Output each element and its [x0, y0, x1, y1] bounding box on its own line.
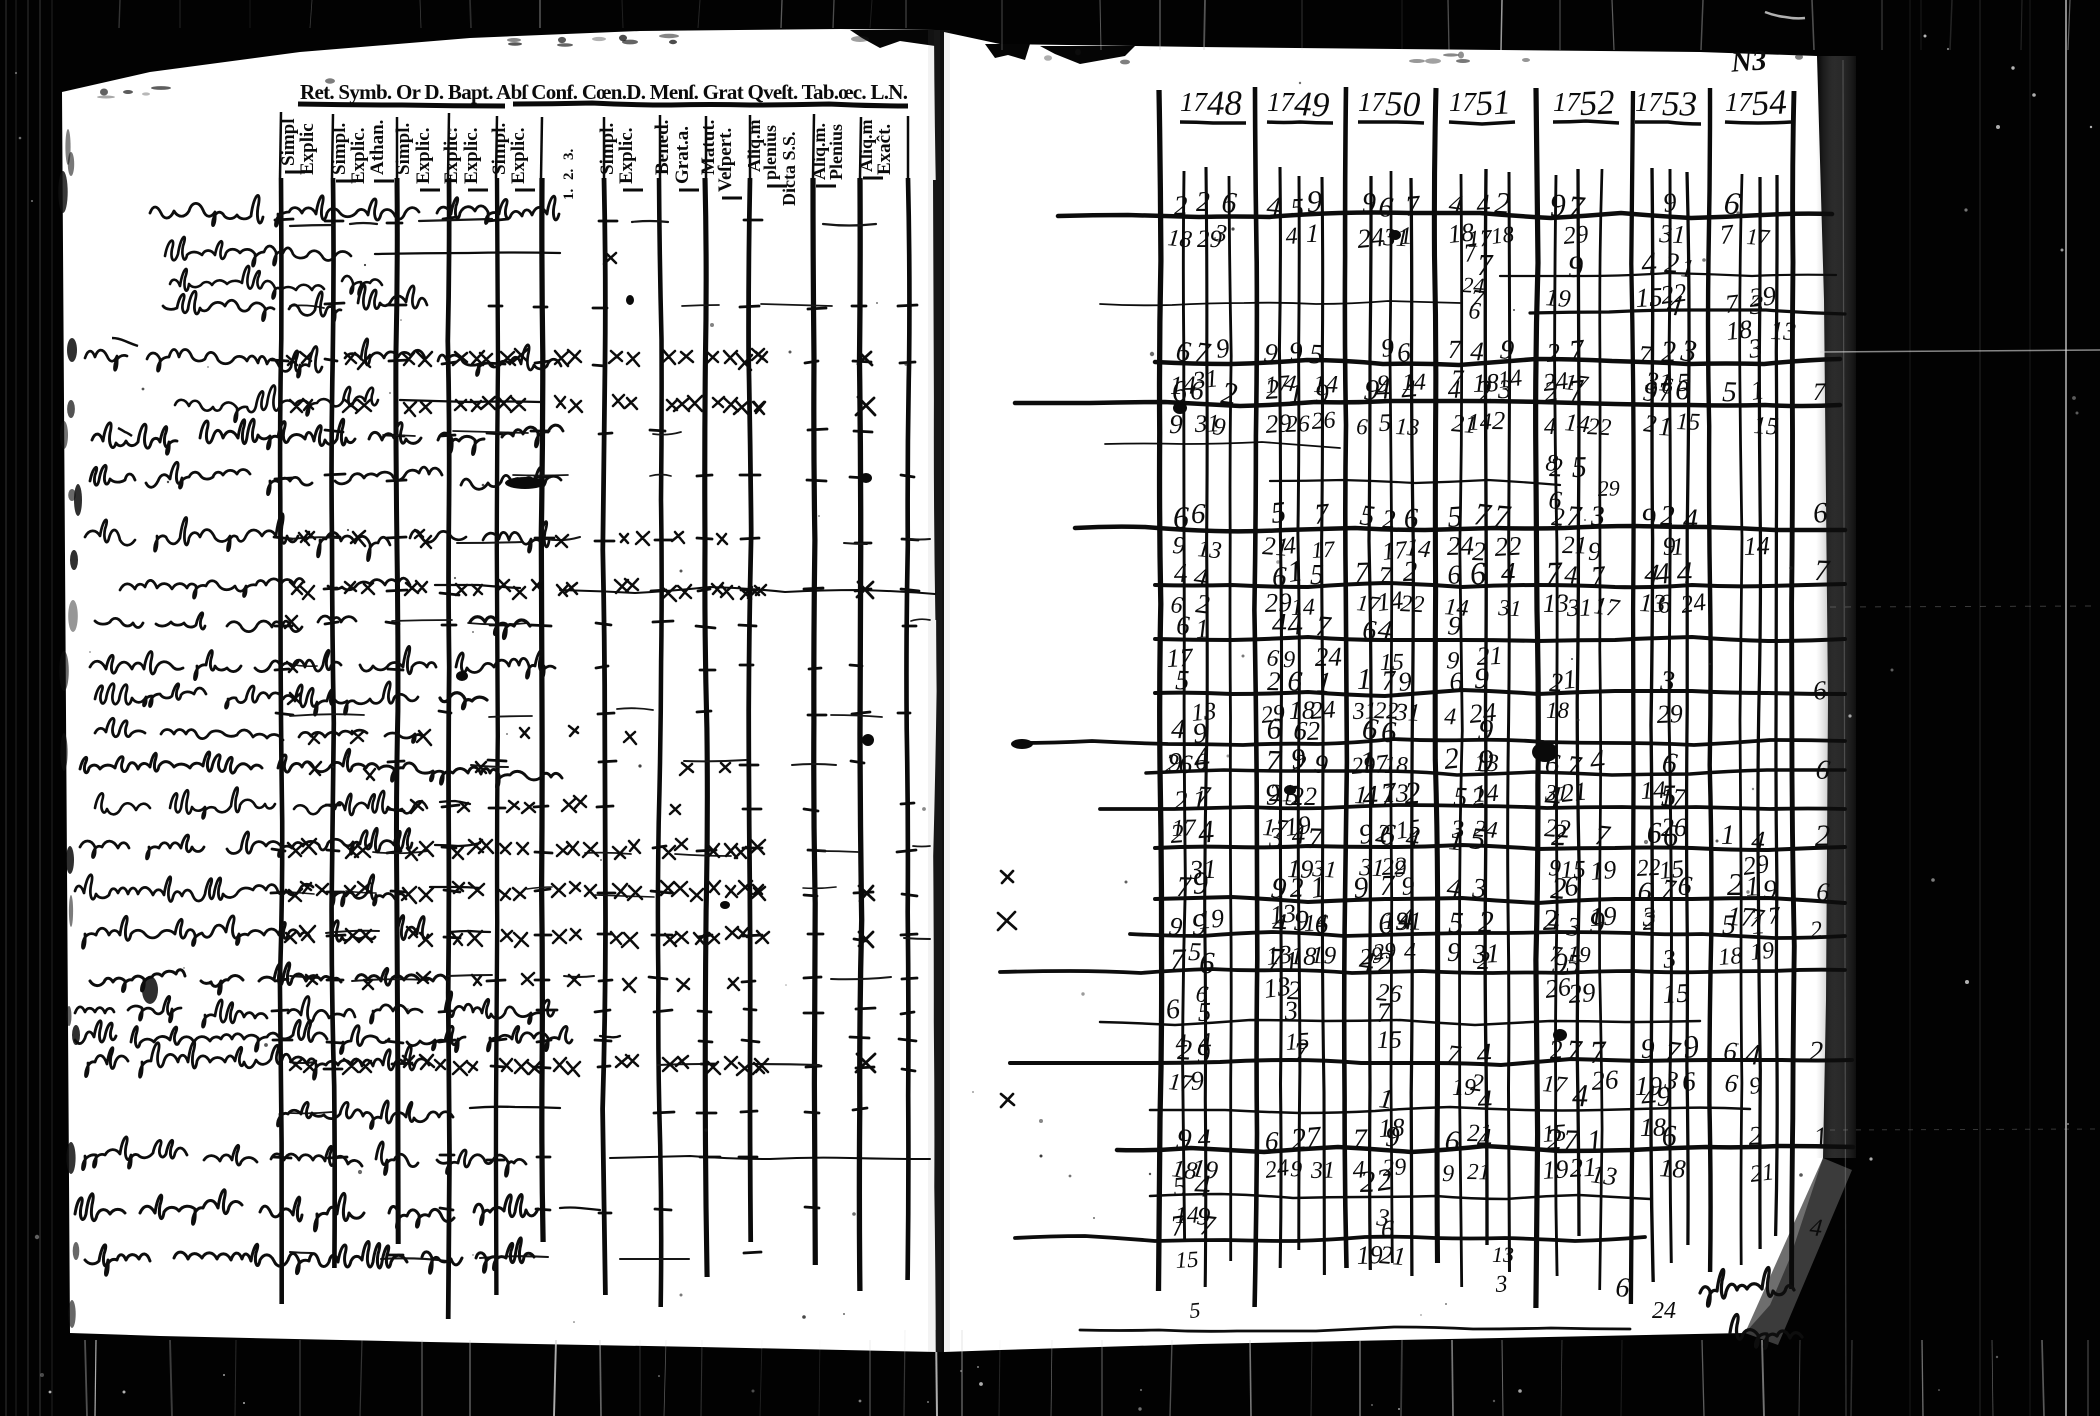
svg-text:4: 4 — [1197, 1124, 1211, 1153]
svg-text:2: 2 — [1542, 903, 1558, 937]
svg-text:5: 5 — [1572, 451, 1588, 484]
svg-text:7: 7 — [1265, 743, 1283, 779]
svg-text:17: 17 — [1541, 1071, 1568, 1099]
svg-text:50: 50 — [1385, 84, 1422, 124]
svg-text:6: 6 — [1816, 877, 1830, 907]
svg-text:31: 31 — [1497, 595, 1522, 621]
svg-text:1: 1 — [1192, 785, 1207, 816]
svg-text:5: 5 — [1175, 665, 1190, 696]
svg-text:5: 5 — [1448, 906, 1465, 940]
svg-text:4: 4 — [1272, 608, 1288, 641]
svg-text:5: 5 — [1721, 910, 1736, 941]
svg-text:4: 4 — [1477, 1085, 1493, 1117]
svg-text:19: 19 — [1544, 284, 1572, 313]
svg-text:9: 9 — [1264, 778, 1282, 812]
svg-text:4: 4 — [1501, 557, 1516, 589]
svg-text:1: 1 — [1357, 663, 1373, 696]
svg-text:18: 18 — [1166, 225, 1193, 253]
svg-text:1: 1 — [1289, 378, 1303, 408]
svg-text:6: 6 — [1446, 559, 1462, 590]
svg-text:31: 31 — [1566, 595, 1592, 622]
svg-text:4: 4 — [1375, 372, 1391, 406]
svg-text:9: 9 — [1315, 379, 1330, 410]
svg-text:26: 26 — [1311, 407, 1337, 435]
svg-text:9: 9 — [1589, 904, 1605, 940]
svg-text:6: 6 — [1661, 1119, 1677, 1153]
svg-text:49: 49 — [1293, 84, 1330, 125]
svg-text:4: 4 — [1400, 373, 1418, 409]
svg-text:1: 1 — [1315, 666, 1332, 699]
svg-text:17: 17 — [1267, 87, 1296, 117]
svg-text:6: 6 — [1563, 871, 1579, 903]
svg-text:9: 9 — [1640, 1034, 1655, 1065]
svg-text:24: 24 — [1679, 589, 1708, 619]
svg-text:7: 7 — [1353, 1124, 1369, 1155]
svg-text:Explic.: Explic. — [441, 128, 462, 184]
svg-text:6: 6 — [1191, 498, 1206, 530]
svg-text:9: 9 — [1477, 742, 1494, 779]
svg-text:9: 9 — [1568, 249, 1584, 284]
svg-text:31: 31 — [1394, 699, 1421, 727]
svg-text:9: 9 — [1189, 1065, 1205, 1096]
svg-text:9: 9 — [1447, 937, 1461, 967]
svg-text:2: 2 — [1177, 1034, 1193, 1067]
svg-text:21: 21 — [1749, 1159, 1776, 1188]
svg-text:29: 29 — [1656, 699, 1683, 729]
svg-text:2: 2 — [1551, 502, 1566, 532]
svg-text:7: 7 — [1354, 556, 1371, 589]
svg-text:9: 9 — [1474, 662, 1489, 695]
svg-text:17: 17 — [1180, 87, 1209, 117]
svg-text:2: 2 — [1661, 334, 1677, 369]
svg-text:2: 2 — [1748, 1120, 1763, 1151]
svg-text:13: 13 — [1543, 589, 1570, 618]
svg-text:6: 6 — [1657, 588, 1673, 619]
svg-text:7: 7 — [1176, 871, 1193, 904]
svg-text:2: 2 — [1403, 774, 1421, 811]
svg-text:4: 4 — [1272, 908, 1288, 940]
svg-text:1: 1 — [1195, 613, 1210, 644]
svg-text:3: 3 — [1497, 374, 1512, 404]
svg-text:9: 9 — [1306, 183, 1323, 219]
svg-text:4: 4 — [1285, 223, 1298, 250]
svg-text:Ret. Symb. Or D. Bapt. Abſ Con: Ret. Symb. Or D. Bapt. Abſ Conf. Cœn.D. … — [300, 80, 908, 104]
svg-text:15: 15 — [1753, 412, 1780, 441]
svg-text:5: 5 — [1188, 1297, 1201, 1323]
svg-text:5: 5 — [1197, 997, 1212, 1027]
svg-text:54: 54 — [1751, 82, 1788, 123]
svg-text:7: 7 — [1813, 379, 1827, 406]
svg-text:2: 2 — [1815, 818, 1831, 853]
svg-text:17: 17 — [1725, 87, 1754, 117]
svg-text:29: 29 — [1567, 977, 1597, 1009]
svg-text:Bened.: Bened. — [652, 120, 673, 175]
svg-text:2: 2 — [1306, 716, 1321, 746]
svg-text:4: 4 — [1171, 714, 1186, 745]
svg-text:Explic.: Explic. — [461, 128, 482, 184]
svg-text:13: 13 — [1196, 536, 1223, 564]
svg-text:13: 13 — [1492, 1242, 1514, 1267]
svg-text:7: 7 — [1448, 335, 1463, 364]
svg-text:31: 31 — [1310, 1158, 1335, 1184]
svg-text:9: 9 — [1385, 1121, 1401, 1153]
svg-text:5: 5 — [1285, 780, 1300, 812]
svg-text:4: 4 — [1174, 558, 1188, 588]
svg-text:2: 2 — [1727, 866, 1743, 902]
svg-text:26: 26 — [1590, 1064, 1620, 1096]
svg-text:6: 6 — [1467, 298, 1481, 325]
svg-text:13: 13 — [1770, 316, 1797, 346]
svg-text:6: 6 — [1221, 186, 1238, 220]
svg-text:53: 53 — [1662, 84, 1698, 124]
svg-text:6: 6 — [1315, 909, 1330, 939]
svg-text:17: 17 — [1746, 224, 1772, 250]
svg-text:3: 3 — [1471, 873, 1488, 905]
svg-text:6: 6 — [1723, 1036, 1739, 1067]
svg-text:9: 9 — [1641, 502, 1656, 535]
svg-text:9: 9 — [1168, 748, 1182, 779]
svg-text:Explic: Explic — [297, 123, 318, 175]
svg-text:1: 1 — [1744, 871, 1760, 903]
svg-text:21: 21 — [1378, 1240, 1406, 1271]
svg-text:4: 4 — [1444, 704, 1457, 730]
svg-text:18: 18 — [1717, 943, 1743, 971]
svg-text:7: 7 — [1376, 997, 1392, 1029]
svg-text:Plenius: Plenius — [826, 124, 846, 180]
svg-text:9: 9 — [1400, 871, 1415, 901]
svg-text:2: 2 — [1551, 817, 1567, 852]
svg-text:17: 17 — [1358, 87, 1387, 117]
svg-text:24: 24 — [1462, 272, 1485, 298]
svg-text:21: 21 — [1467, 1159, 1490, 1184]
svg-text:6: 6 — [1190, 375, 1205, 405]
svg-text:4: 4 — [1362, 778, 1379, 814]
svg-text:7: 7 — [1170, 942, 1188, 977]
svg-text:9: 9 — [1442, 1161, 1454, 1187]
svg-text:2: 2 — [1546, 1121, 1563, 1157]
svg-text:21: 21 — [1560, 776, 1589, 808]
svg-text:5: 5 — [1309, 339, 1324, 370]
svg-text:7: 7 — [1307, 822, 1325, 855]
svg-text:14: 14 — [1467, 409, 1492, 436]
svg-text:5: 5 — [1310, 560, 1324, 591]
svg-text:24: 24 — [1652, 1298, 1676, 1324]
svg-text:2: 2 — [1169, 818, 1185, 849]
svg-text:29: 29 — [1597, 475, 1620, 501]
svg-text:52: 52 — [1579, 82, 1616, 123]
svg-text:24: 24 — [1356, 222, 1386, 254]
svg-text:6: 6 — [1646, 816, 1662, 850]
svg-text:15: 15 — [1175, 1246, 1200, 1273]
svg-text:1: 1 — [1750, 909, 1766, 941]
svg-text:2: 2 — [1196, 187, 1210, 218]
svg-text:9: 9 — [1191, 864, 1209, 901]
svg-text:6: 6 — [1404, 503, 1420, 535]
svg-text:3: 3 — [1213, 220, 1228, 248]
svg-text:2: 2 — [1492, 406, 1506, 435]
svg-text:13: 13 — [1395, 414, 1420, 441]
svg-text:4: 4 — [1398, 901, 1415, 937]
svg-text:6: 6 — [1265, 1126, 1279, 1156]
svg-text:6: 6 — [1356, 414, 1369, 439]
svg-text:1: 1 — [1399, 223, 1412, 250]
svg-text:4: 4 — [1291, 820, 1306, 850]
svg-text:6: 6 — [1287, 665, 1304, 698]
svg-text:1: 1 — [1658, 411, 1673, 442]
svg-text:4: 4 — [1683, 503, 1698, 536]
svg-text:19: 19 — [1749, 938, 1776, 966]
svg-text:4: 4 — [1544, 414, 1556, 440]
svg-text:3: 3 — [1494, 1271, 1509, 1298]
svg-text:17: 17 — [1553, 87, 1582, 117]
svg-text:2: 2 — [1660, 500, 1675, 532]
svg-text:9: 9 — [1656, 1081, 1672, 1113]
svg-text:2: 2 — [1382, 504, 1396, 534]
svg-text:Simpl.: Simpl. — [597, 123, 618, 175]
svg-text:4: 4 — [1745, 1038, 1762, 1072]
svg-text:1: 1 — [1721, 820, 1736, 851]
svg-text:7: 7 — [1638, 340, 1653, 370]
svg-text:5: 5 — [1446, 500, 1463, 534]
svg-text:Veſpert.: Veſpert. — [715, 128, 736, 192]
svg-text:15: 15 — [1377, 1027, 1402, 1054]
svg-text:4: 4 — [1475, 189, 1491, 221]
svg-text:Explic.: Explic. — [348, 128, 369, 184]
svg-text:4: 4 — [1196, 813, 1215, 850]
svg-text:3: 3 — [1659, 665, 1676, 698]
svg-text:2.: 2. — [561, 169, 577, 181]
svg-text:14: 14 — [1743, 531, 1770, 561]
svg-text:7: 7 — [1380, 870, 1397, 902]
svg-text:15: 15 — [1676, 409, 1701, 436]
svg-text:18: 18 — [1659, 1153, 1687, 1184]
svg-text:1: 1 — [1306, 219, 1319, 248]
svg-text:7: 7 — [1294, 1037, 1310, 1067]
svg-text:2: 2 — [1478, 904, 1494, 939]
svg-text:4: 4 — [1654, 557, 1672, 591]
svg-text:9: 9 — [1352, 871, 1369, 905]
svg-text:Athan.: Athan. — [367, 120, 388, 175]
svg-text:4: 4 — [1404, 939, 1416, 965]
svg-text:17: 17 — [1635, 87, 1664, 117]
svg-text:2: 2 — [1360, 1164, 1376, 1199]
svg-text:3: 3 — [1590, 501, 1606, 532]
svg-text:3.: 3. — [561, 149, 577, 161]
svg-text:19: 19 — [1541, 1154, 1569, 1185]
svg-text:2: 2 — [1642, 906, 1656, 936]
svg-text:51: 51 — [1475, 82, 1512, 123]
svg-text:Explic.: Explic. — [508, 128, 529, 184]
svg-text:2: 2 — [1494, 185, 1511, 221]
svg-text:Grat.a.: Grat.a. — [672, 126, 693, 184]
svg-text:2: 2 — [1267, 666, 1281, 696]
svg-text:4: 4 — [1265, 191, 1282, 223]
svg-text:4: 4 — [1543, 778, 1562, 815]
svg-text:3: 3 — [1282, 995, 1299, 1026]
svg-text:6: 6 — [1381, 714, 1397, 749]
svg-text:2: 2 — [1173, 191, 1188, 222]
svg-text:2: 2 — [1809, 1036, 1824, 1068]
svg-text:19: 19 — [1589, 855, 1617, 886]
svg-text:4: 4 — [1476, 1037, 1492, 1071]
svg-text:3: 3 — [1268, 823, 1283, 854]
svg-text:6: 6 — [1615, 1272, 1631, 1304]
svg-text:5: 5 — [1378, 410, 1391, 437]
svg-text:24: 24 — [1263, 1155, 1290, 1184]
svg-text:6: 6 — [1378, 191, 1395, 224]
svg-text:19: 19 — [1311, 942, 1337, 969]
svg-text:Explic.: Explic. — [616, 128, 637, 184]
svg-text:2: 2 — [1664, 247, 1681, 280]
svg-text:9: 9 — [1362, 188, 1376, 219]
svg-text:9: 9 — [1172, 532, 1187, 560]
svg-text:2: 2 — [1546, 337, 1561, 368]
svg-text:17: 17 — [1449, 87, 1478, 117]
svg-text:21: 21 — [1562, 532, 1587, 559]
svg-text:6: 6 — [1362, 615, 1378, 647]
svg-text:13: 13 — [1589, 1159, 1619, 1191]
svg-text:4: 4 — [1572, 1077, 1589, 1113]
svg-text:Dicta S.S.: Dicta S.S. — [779, 131, 799, 206]
svg-text:4: 4 — [1564, 560, 1578, 590]
svg-text:4: 4 — [1194, 1167, 1212, 1204]
svg-text:31: 31 — [1658, 219, 1686, 249]
svg-text:6: 6 — [1199, 945, 1216, 980]
svg-text:5: 5 — [1661, 778, 1677, 813]
svg-text:9: 9 — [1549, 187, 1566, 223]
svg-text:6: 6 — [1663, 818, 1680, 853]
svg-text:5: 5 — [1722, 376, 1738, 408]
svg-text:4: 4 — [1677, 555, 1693, 590]
svg-text:4: 4 — [1470, 336, 1485, 366]
svg-text:4: 4 — [1447, 375, 1461, 404]
svg-text:2: 2 — [1477, 946, 1490, 975]
svg-text:6: 6 — [1173, 499, 1189, 535]
svg-text:2: 2 — [1264, 374, 1280, 406]
svg-text:9: 9 — [1293, 904, 1310, 938]
svg-text:5: 5 — [1290, 192, 1305, 223]
svg-text:Explic.: Explic. — [413, 128, 434, 184]
svg-text:18: 18 — [1546, 698, 1570, 723]
svg-text:Simpl.: Simpl. — [489, 123, 510, 175]
svg-text:4: 4 — [1286, 606, 1304, 642]
svg-text:48: 48 — [1207, 83, 1243, 123]
svg-text:6: 6 — [1176, 610, 1191, 640]
svg-text:17: 17 — [1311, 536, 1337, 563]
svg-text:plenius: plenius — [760, 125, 780, 180]
svg-text:6: 6 — [1448, 666, 1464, 697]
svg-text:29: 29 — [1562, 221, 1590, 250]
svg-text:2: 2 — [1378, 947, 1393, 979]
svg-text:9: 9 — [1763, 875, 1778, 906]
svg-text:15: 15 — [1662, 978, 1691, 1009]
svg-text:1.: 1. — [561, 189, 577, 201]
svg-text:18: 18 — [1490, 221, 1516, 249]
svg-text:6: 6 — [1266, 712, 1283, 746]
svg-text:22: 22 — [1587, 414, 1612, 441]
svg-text:4: 4 — [1640, 245, 1658, 281]
svg-text:22: 22 — [1400, 591, 1425, 618]
svg-text:Exaĉt.: Exaĉt. — [874, 124, 895, 175]
svg-text:6: 6 — [1675, 373, 1691, 407]
svg-text:26: 26 — [1285, 411, 1310, 438]
svg-text:4: 4 — [1640, 1081, 1658, 1115]
svg-text:N3: N3 — [1729, 44, 1768, 78]
svg-text:5: 5 — [1453, 782, 1468, 813]
svg-text:2: 2 — [1173, 786, 1188, 817]
svg-text:2: 2 — [1403, 556, 1418, 588]
svg-text:7: 7 — [1381, 665, 1398, 697]
svg-text:4: 4 — [1477, 1123, 1493, 1156]
svg-text:9: 9 — [1290, 1156, 1304, 1182]
